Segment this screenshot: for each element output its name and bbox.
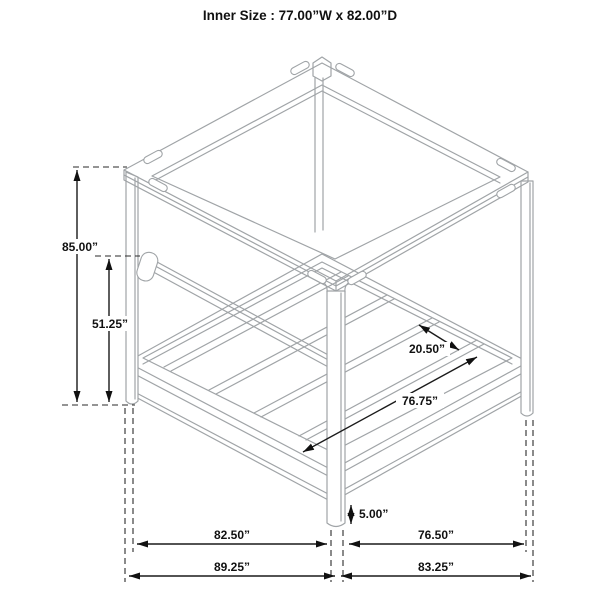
canopy-side-face bbox=[124, 170, 528, 291]
canopy-corner-slots bbox=[143, 60, 517, 286]
back-corner-connector bbox=[313, 57, 331, 81]
canopy-outer-edge bbox=[124, 63, 528, 281]
slot bbox=[496, 157, 517, 173]
back-post bbox=[313, 57, 331, 232]
dimension-lines bbox=[77, 170, 531, 576]
label-clearance: 5.00” bbox=[359, 507, 388, 521]
back-post-lines bbox=[315, 78, 323, 232]
right-post-body bbox=[521, 181, 533, 416]
front-post-body bbox=[327, 291, 345, 527]
canopy-bed-technical-drawing: Inner Size : 77.00”W x 82.00”D bbox=[0, 0, 600, 600]
canopy-inner-edge bbox=[152, 85, 500, 259]
page-title: Inner Size : 77.00”W x 82.00”D bbox=[203, 8, 398, 23]
label-overall-width: 89.25” bbox=[214, 560, 250, 574]
label-slat-spacing: 20.50” bbox=[409, 342, 445, 356]
slot bbox=[290, 60, 311, 76]
left-post bbox=[126, 172, 160, 404]
dimension-diagram-page: Inner Size : 77.00”W x 82.00”D bbox=[0, 0, 600, 600]
front-post bbox=[320, 280, 352, 527]
right-post bbox=[521, 181, 533, 416]
slot bbox=[148, 177, 169, 193]
label-post-span-depth: 76.50” bbox=[418, 528, 454, 542]
label-rail-height: 51.25” bbox=[92, 317, 128, 331]
left-post-body bbox=[126, 172, 138, 404]
label-overall-height: 85.00” bbox=[62, 240, 98, 254]
label-post-span-width: 82.50” bbox=[214, 528, 250, 542]
label-inner-depth: 76.75” bbox=[402, 394, 438, 408]
label-overall-depth: 83.25” bbox=[418, 560, 454, 574]
slot bbox=[143, 149, 164, 165]
slot bbox=[496, 183, 517, 199]
canopy-inner-face bbox=[152, 91, 500, 183]
dimension-labels: 85.00” 51.25” 20.50” 76.75” 5.00” 82.50”… bbox=[56, 239, 454, 574]
